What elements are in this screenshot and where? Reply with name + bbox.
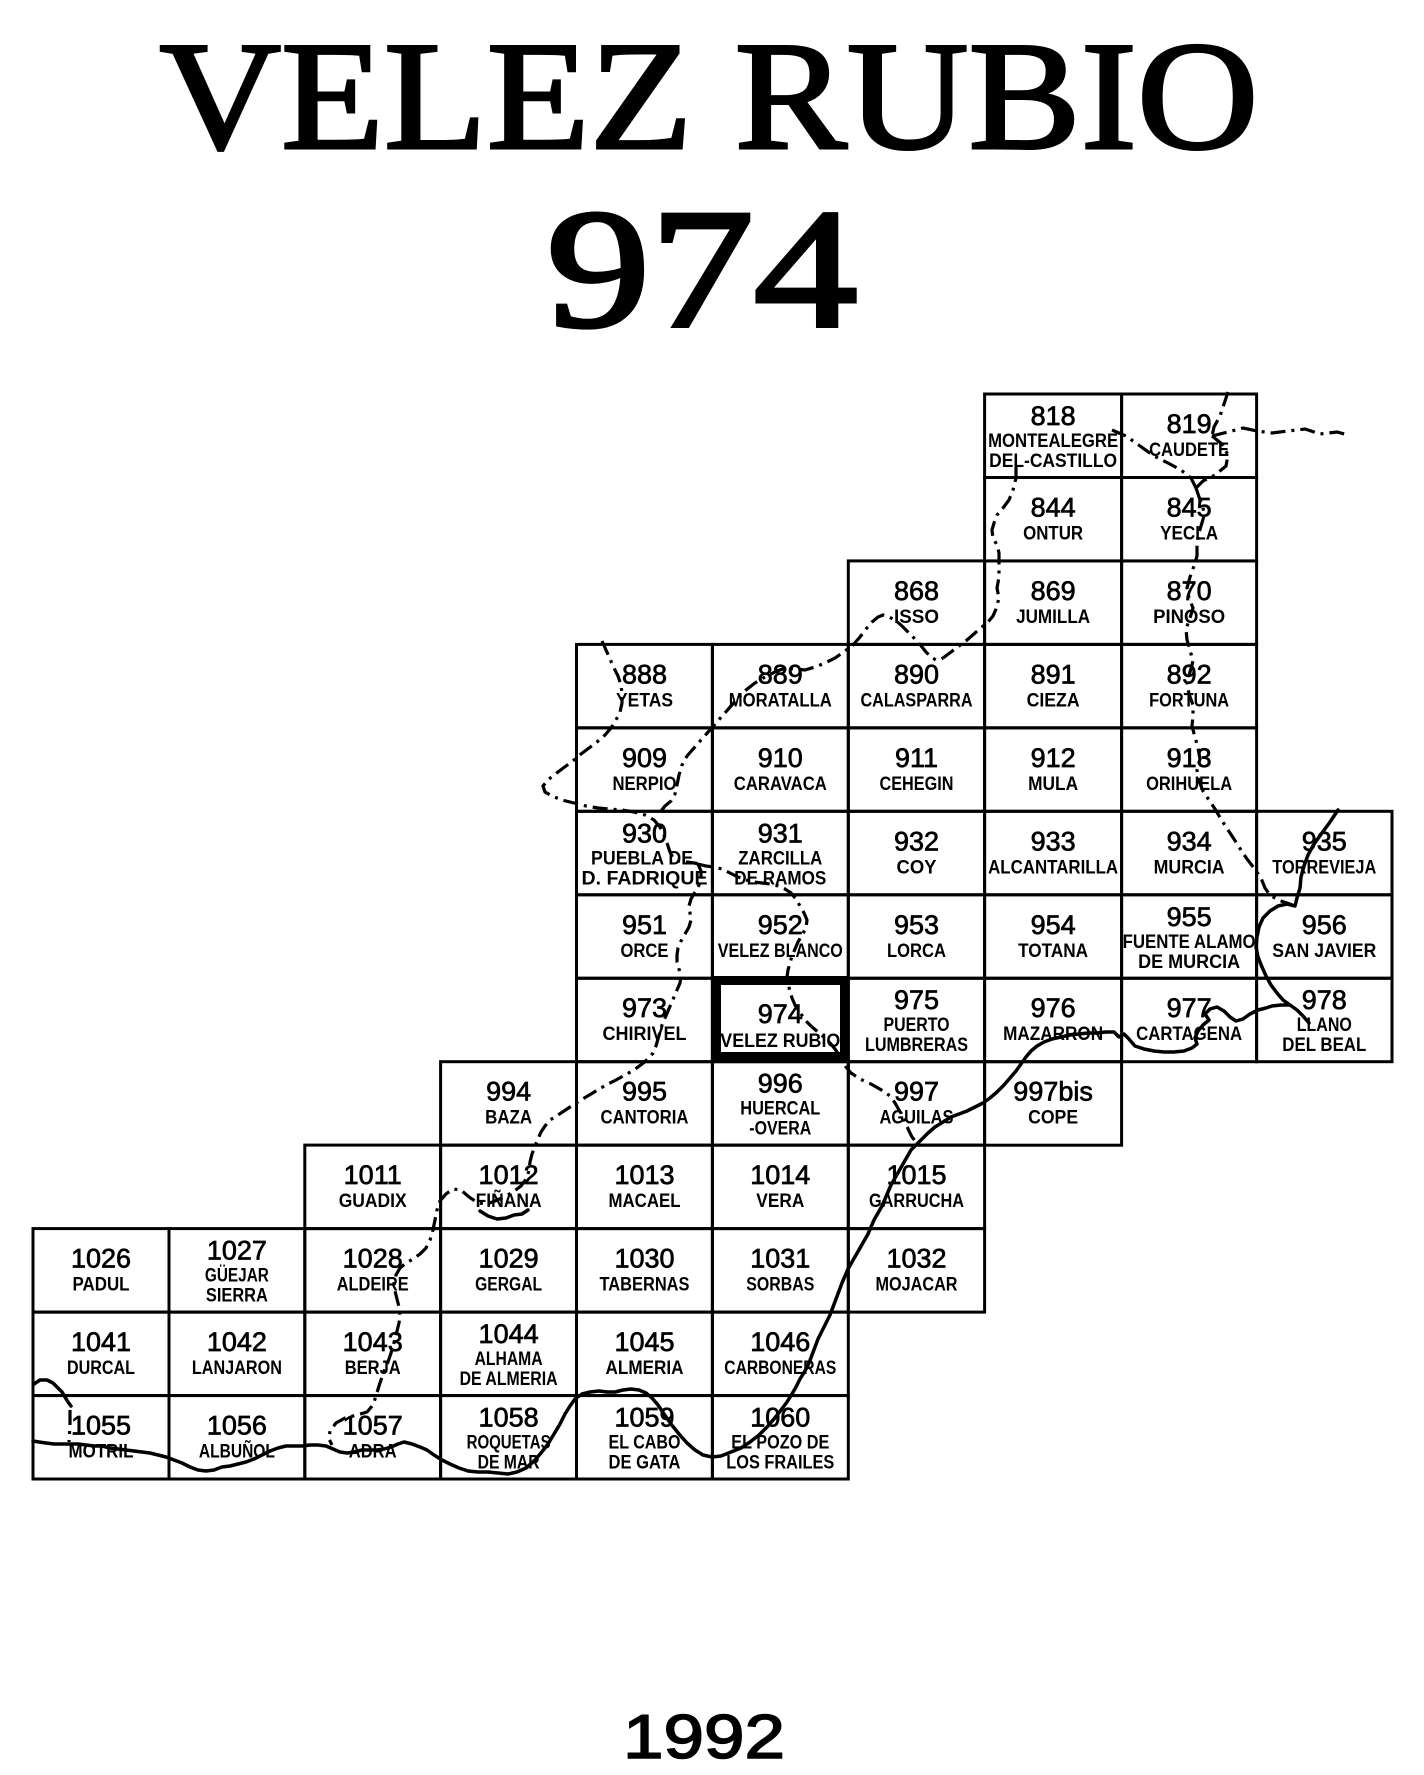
svg-text:955: 955 — [1167, 902, 1212, 932]
svg-text:AGUILAS: AGUILAS — [880, 1108, 954, 1129]
svg-text:PUERTO: PUERTO — [884, 1015, 950, 1036]
svg-text:951: 951 — [622, 910, 667, 940]
svg-text:MONTEALEGRE: MONTEALEGRE — [988, 431, 1118, 452]
svg-text:COY: COY — [897, 857, 937, 878]
svg-text:954: 954 — [1031, 910, 1076, 940]
svg-text:CAUDETE: CAUDETE — [1149, 440, 1229, 461]
svg-text:952: 952 — [758, 910, 803, 940]
svg-text:819: 819 — [1167, 409, 1212, 439]
svg-text:1045: 1045 — [614, 1327, 674, 1357]
svg-text:GERGAL: GERGAL — [475, 1275, 542, 1296]
svg-text:975: 975 — [894, 985, 939, 1015]
svg-text:ZARCILLA: ZARCILLA — [738, 848, 822, 869]
svg-text:1028: 1028 — [343, 1244, 403, 1274]
svg-text:CARBONERAS: CARBONERAS — [724, 1358, 836, 1379]
svg-text:889: 889 — [758, 659, 803, 689]
svg-text:VELEZ RUBIO: VELEZ RUBIO — [160, 10, 1259, 182]
svg-text:1027: 1027 — [207, 1236, 267, 1266]
svg-text:ORCE: ORCE — [621, 941, 669, 962]
svg-text:891: 891 — [1031, 659, 1076, 689]
svg-text:996: 996 — [758, 1069, 803, 1099]
svg-text:FUENTE ALAMO: FUENTE ALAMO — [1123, 932, 1256, 953]
svg-text:VELEZ BLANCO: VELEZ BLANCO — [718, 941, 843, 962]
svg-text:HUERCAL: HUERCAL — [740, 1099, 820, 1120]
svg-text:869: 869 — [1031, 576, 1076, 606]
svg-text:VERA: VERA — [756, 1191, 804, 1212]
svg-text:ALHAMA: ALHAMA — [475, 1349, 543, 1370]
svg-text:956: 956 — [1302, 910, 1347, 940]
svg-text:DURCAL: DURCAL — [67, 1358, 135, 1379]
svg-text:932: 932 — [894, 826, 939, 856]
svg-text:TABERNAS: TABERNAS — [600, 1275, 690, 1296]
svg-text:CEHEGIN: CEHEGIN — [880, 774, 954, 795]
svg-text:997: 997 — [894, 1077, 939, 1107]
svg-text:953: 953 — [894, 910, 939, 940]
svg-text:1031: 1031 — [750, 1244, 810, 1274]
svg-text:868: 868 — [894, 576, 939, 606]
svg-text:1013: 1013 — [614, 1160, 674, 1190]
svg-text:BERJA: BERJA — [345, 1358, 401, 1379]
svg-text:911: 911 — [895, 743, 938, 773]
svg-text:ROQUETAS: ROQUETAS — [467, 1433, 551, 1454]
svg-text:973: 973 — [622, 993, 667, 1023]
svg-text:COPE: COPE — [1028, 1108, 1078, 1129]
svg-text:JUMILLA: JUMILLA — [1016, 607, 1090, 628]
svg-text:1992: 1992 — [623, 1703, 785, 1772]
svg-text:LOS FRAILES: LOS FRAILES — [726, 1453, 834, 1474]
svg-text:1055: 1055 — [71, 1411, 131, 1441]
svg-text:934: 934 — [1167, 826, 1212, 856]
svg-text:997bis: 997bis — [1013, 1077, 1093, 1107]
svg-text:GUADIX: GUADIX — [339, 1191, 407, 1212]
svg-text:LUMBRERAS: LUMBRERAS — [865, 1035, 968, 1056]
svg-text:SORBAS: SORBAS — [746, 1275, 814, 1296]
svg-text:912: 912 — [1031, 743, 1076, 773]
svg-text:MULA: MULA — [1028, 774, 1078, 795]
svg-text:1041: 1041 — [71, 1327, 131, 1357]
svg-text:910: 910 — [758, 743, 803, 773]
svg-text:DEL BEAL: DEL BEAL — [1282, 1035, 1366, 1056]
svg-text:1056: 1056 — [207, 1411, 267, 1441]
svg-text:1029: 1029 — [479, 1244, 539, 1274]
svg-text:EL CABO: EL CABO — [609, 1433, 681, 1454]
svg-text:1046: 1046 — [750, 1327, 810, 1357]
svg-text:1042: 1042 — [207, 1327, 267, 1357]
svg-text:890: 890 — [894, 659, 939, 689]
svg-text:976: 976 — [1031, 993, 1076, 1023]
svg-text:ALMERIA: ALMERIA — [606, 1358, 684, 1379]
svg-text:SAN JAVIER: SAN JAVIER — [1272, 941, 1376, 962]
svg-text:CALASPARRA: CALASPARRA — [861, 690, 973, 711]
svg-text:978: 978 — [1302, 985, 1347, 1015]
svg-text:1032: 1032 — [886, 1244, 946, 1274]
svg-text:GÜEJAR: GÜEJAR — [205, 1266, 269, 1287]
svg-text:D. FADRIQUE: D. FADRIQUE — [582, 868, 708, 889]
svg-text:MOJACAR: MOJACAR — [876, 1275, 958, 1296]
svg-text:909: 909 — [622, 743, 667, 773]
svg-text:BAZA: BAZA — [485, 1108, 532, 1129]
svg-text:CARTAGENA: CARTAGENA — [1136, 1024, 1242, 1045]
svg-text:818: 818 — [1031, 401, 1076, 431]
svg-text:1044: 1044 — [479, 1319, 539, 1349]
svg-text:YECLA: YECLA — [1160, 524, 1218, 545]
svg-text:1014: 1014 — [750, 1160, 810, 1190]
svg-text:VELEZ RUBIO: VELEZ RUBIO — [720, 1031, 840, 1052]
svg-text:PADUL: PADUL — [73, 1275, 130, 1296]
svg-text:-OVERA: -OVERA — [749, 1119, 811, 1140]
svg-text:DE ALMERIA: DE ALMERIA — [460, 1369, 558, 1390]
svg-text:ORIHUELA: ORIHUELA — [1146, 774, 1232, 795]
svg-text:PUEBLA DE.: PUEBLA DE. — [591, 848, 698, 869]
svg-text:ONTUR: ONTUR — [1023, 524, 1083, 545]
svg-text:DE GATA: DE GATA — [609, 1453, 681, 1474]
svg-text:994: 994 — [486, 1077, 531, 1107]
svg-text:NERPIO: NERPIO — [613, 774, 677, 795]
svg-text:SIERRA: SIERRA — [206, 1286, 268, 1307]
svg-text:974: 974 — [547, 175, 858, 363]
svg-text:ALCANTARILLA: ALCANTARILLA — [988, 857, 1118, 878]
svg-text:933: 933 — [1031, 826, 1076, 856]
svg-text:DE MURCIA: DE MURCIA — [1138, 952, 1240, 973]
svg-text:CIEZA: CIEZA — [1027, 690, 1080, 711]
svg-text:LORCA: LORCA — [887, 941, 946, 962]
svg-text:1026: 1026 — [71, 1244, 131, 1274]
svg-text:MURCIA: MURCIA — [1154, 857, 1225, 878]
svg-text:931: 931 — [758, 818, 803, 848]
svg-text:888: 888 — [622, 659, 667, 689]
svg-text:1058: 1058 — [479, 1403, 539, 1433]
svg-text:977: 977 — [1167, 993, 1212, 1023]
svg-text:1030: 1030 — [614, 1244, 674, 1274]
svg-text:844: 844 — [1031, 493, 1076, 523]
svg-text:DEL-CASTILLO: DEL-CASTILLO — [989, 451, 1117, 472]
svg-text:1011: 1011 — [344, 1160, 402, 1190]
svg-text:1060: 1060 — [750, 1403, 810, 1433]
svg-text:MORATALLA: MORATALLA — [729, 690, 832, 711]
svg-text:995: 995 — [622, 1077, 667, 1107]
svg-text:ALDEIRE: ALDEIRE — [337, 1275, 409, 1296]
svg-text:930: 930 — [622, 818, 667, 848]
svg-text:MACAEL: MACAEL — [609, 1191, 681, 1212]
svg-text:LANJARON: LANJARON — [192, 1358, 282, 1379]
svg-text:ALBUÑOL: ALBUÑOL — [199, 1441, 275, 1463]
svg-text:DE RAMOS: DE RAMOS — [734, 868, 826, 889]
svg-text:CARAVACA: CARAVACA — [734, 774, 827, 795]
svg-text:TORREVIEJA: TORREVIEJA — [1272, 857, 1376, 878]
svg-text:CANTORIA: CANTORIA — [601, 1108, 689, 1129]
svg-text:TOTANA: TOTANA — [1018, 941, 1088, 962]
svg-text:CHIRIVEL: CHIRIVEL — [603, 1024, 687, 1045]
svg-text:YETAS: YETAS — [616, 690, 673, 711]
svg-text:913: 913 — [1167, 743, 1212, 773]
